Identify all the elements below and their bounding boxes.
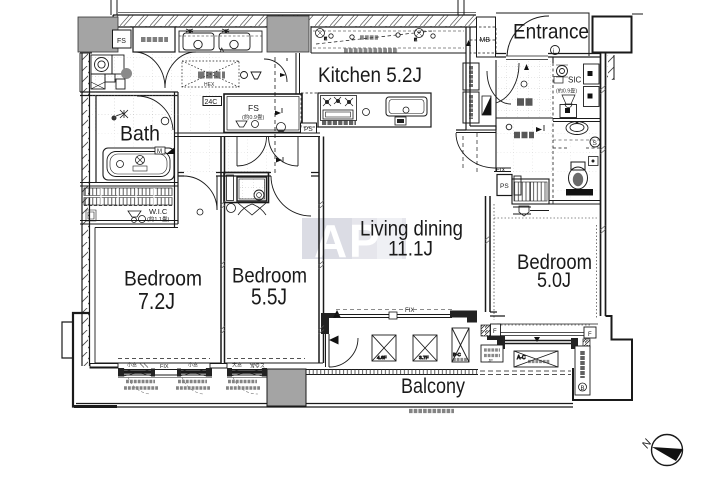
svg-text:小窓: 小窓: [188, 362, 198, 369]
svg-text:FIX: FIX: [496, 168, 505, 174]
svg-text:大窓: 大窓: [232, 362, 242, 369]
svg-text:MB: MB: [480, 37, 491, 44]
svg-text:FS: FS: [248, 103, 259, 113]
svg-text:W.I.C: W.I.C: [149, 207, 168, 216]
svg-text:E: E: [414, 37, 417, 42]
svg-text:FS: FS: [117, 38, 126, 45]
svg-text:JF: JF: [488, 358, 493, 363]
svg-text:PS: PS: [500, 183, 509, 190]
svg-text:(約0.9畳): (約0.9畳): [556, 87, 577, 95]
svg-text:11.1J: 11.1J: [388, 238, 433, 261]
svg-text:B-C: B-C: [453, 352, 462, 357]
svg-text:24C: 24C: [205, 99, 218, 106]
svg-text:F: F: [493, 329, 497, 335]
svg-text:5.0J: 5.0J: [537, 269, 571, 292]
svg-text:FIX: FIX: [405, 308, 414, 314]
svg-text:HEX: HEX: [204, 82, 215, 88]
svg-text:5.5J: 5.5J: [251, 284, 287, 310]
svg-text:小窓: 小窓: [127, 362, 137, 369]
svg-text:Kitchen 5.2J: Kitchen 5.2J: [318, 64, 422, 87]
svg-text:4.6F: 4.6F: [377, 355, 387, 361]
svg-text:(約0.9畳): (約0.9畳): [242, 113, 264, 121]
svg-text:M: M: [157, 149, 162, 155]
svg-text:Bath: Bath: [120, 123, 160, 146]
svg-text:(約1.1畳): (約1.1畳): [147, 215, 169, 223]
svg-text:FIX: FIX: [160, 364, 169, 370]
svg-text:E: E: [324, 36, 327, 41]
svg-text:F: F: [588, 332, 592, 338]
svg-text:3.7F: 3.7F: [419, 355, 429, 361]
svg-text:B: B: [581, 386, 585, 392]
svg-text:A-C: A-C: [517, 355, 526, 361]
svg-text:7.2J: 7.2J: [138, 288, 175, 314]
svg-text:Balcony: Balcony: [401, 375, 465, 398]
svg-text:Entrance: Entrance: [513, 21, 589, 44]
svg-text:i: i: [553, 49, 554, 55]
svg-text:SIC: SIC: [568, 76, 582, 85]
